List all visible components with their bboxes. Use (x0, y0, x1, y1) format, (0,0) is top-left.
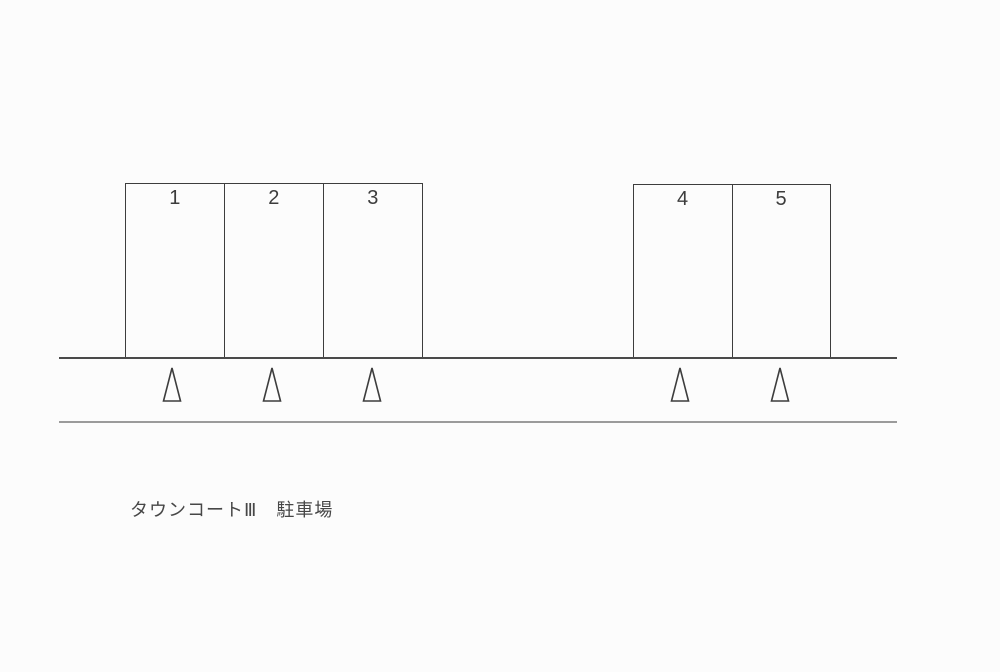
parking-space-2: 2 (225, 184, 324, 358)
space-number-5: 5 (733, 188, 831, 211)
space-number-3: 3 (324, 187, 422, 210)
space-number-4: 4 (634, 188, 732, 211)
parking-block-4-5: 4 5 (633, 184, 831, 358)
cone-marker-icon-1 (161, 366, 183, 403)
cone-marker-icon-3 (361, 366, 383, 403)
space-number-2: 2 (225, 187, 323, 210)
parking-space-4: 4 (634, 185, 733, 358)
parking-diagram-sheet: 1 2 3 4 5 タウンコートⅢ 駐車場 (0, 0, 1000, 672)
road-far-edge-line (59, 421, 897, 423)
space-number-1: 1 (126, 187, 224, 210)
parking-space-3: 3 (324, 184, 422, 358)
parking-space-1: 1 (126, 184, 225, 358)
cone-marker-icon-5 (769, 366, 791, 403)
cone-marker-icon-4 (669, 366, 691, 403)
cone-marker-icon-2 (261, 366, 283, 403)
parking-block-1-3: 1 2 3 (125, 183, 423, 358)
road-near-edge-line (59, 357, 897, 359)
parking-space-5: 5 (733, 185, 831, 358)
diagram-caption: タウンコートⅢ 駐車場 (130, 496, 333, 522)
